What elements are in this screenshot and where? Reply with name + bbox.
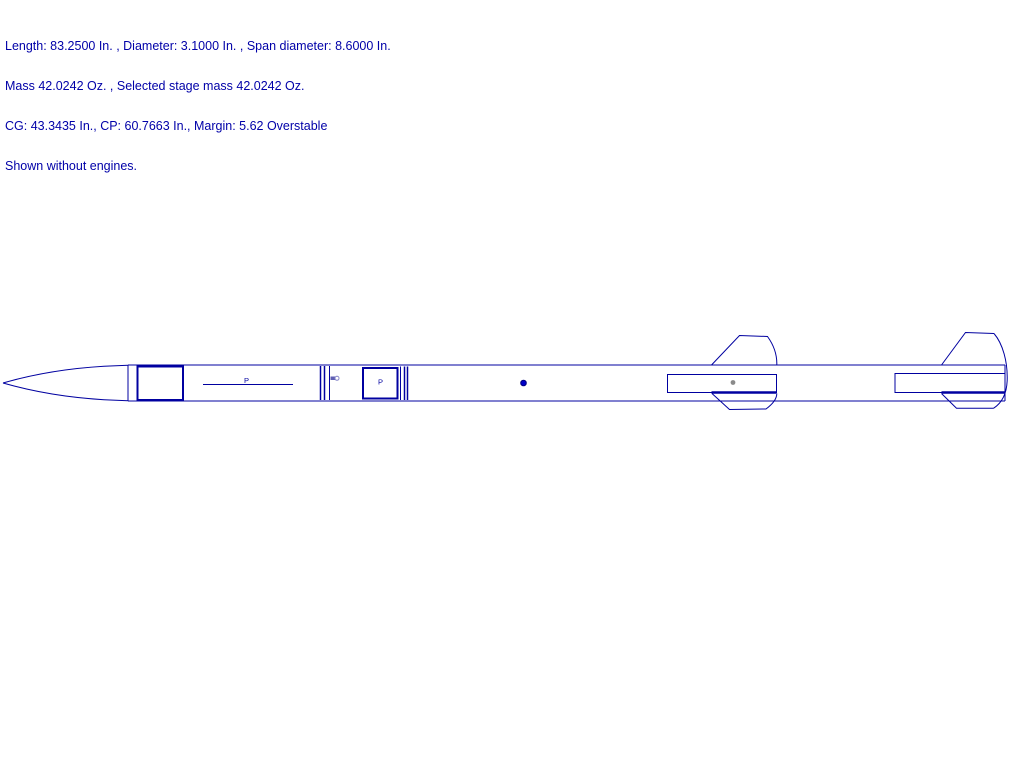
stats-line-dimensions: Length: 83.2500 In. , Diameter: 3.1000 I… [5,40,391,53]
parachute-pack[interactable]: P [363,368,398,399]
eyebolt-icon[interactable] [331,376,340,380]
cg-marker-dot[interactable] [521,380,527,386]
forward-inner-tube[interactable] [668,375,777,393]
stats-line-stability: CG: 43.3435 In., CP: 60.7663 In., Margin… [5,120,391,133]
shock-cord[interactable]: P [203,376,293,385]
parachute-label-2: P [378,378,383,387]
rocket-stats-text: Length: 83.2500 In. , Diameter: 3.1000 I… [5,13,391,201]
stats-line-mass: Mass 42.0242 Oz. , Selected stage mass 4… [5,80,391,93]
fin-set-forward[interactable] [668,336,777,410]
fin-set-aft[interactable] [895,333,1007,409]
bulkhead-lines[interactable] [401,367,408,401]
stats-line-engines-note: Shown without engines. [5,160,391,173]
nose-shoulder[interactable] [138,367,184,401]
parachute-label-1: P [244,376,249,385]
nose-cone[interactable] [3,365,128,400]
forward-upper-fin[interactable] [712,336,777,366]
aft-inner-tube[interactable] [895,374,1005,393]
coupler-lines[interactable] [321,366,330,400]
design-view: P P [0,0,1024,768]
aft-upper-fin[interactable] [942,333,995,366]
body-tube[interactable] [128,365,1005,401]
forward-mass-marker-dot [731,380,736,385]
